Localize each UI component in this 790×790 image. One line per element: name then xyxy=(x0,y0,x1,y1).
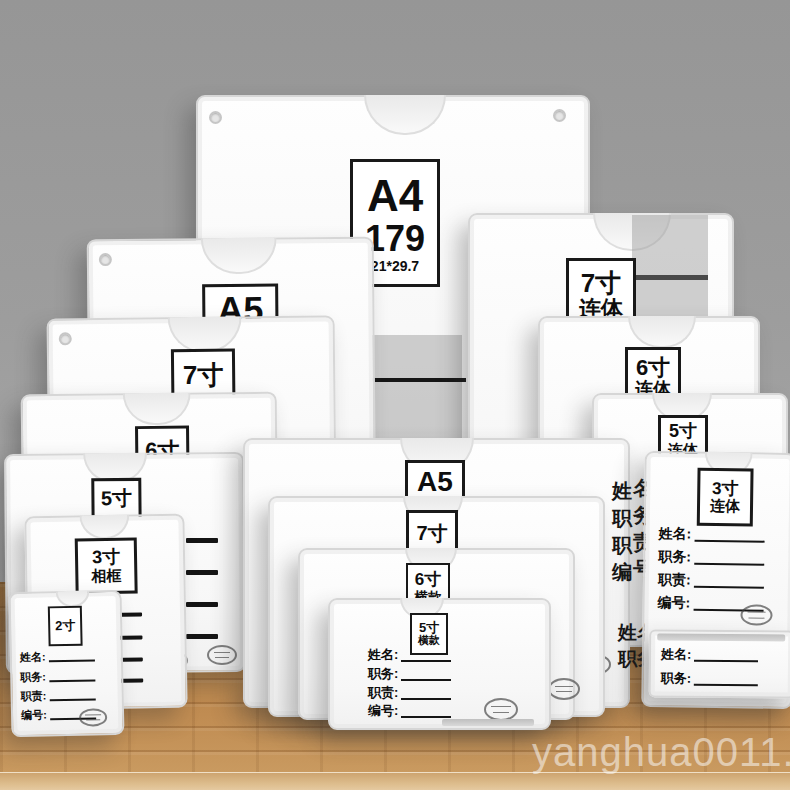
field-line xyxy=(401,660,451,662)
name-field-label: 姓名: xyxy=(659,525,692,543)
size-label-3inch-photo: 3寸 相框 xyxy=(75,537,138,594)
size-text: 2寸 xyxy=(55,619,76,633)
screw-hole-icon xyxy=(59,332,72,345)
field-line xyxy=(401,698,451,700)
size-text: 5寸 xyxy=(669,422,697,441)
size-text: A4 xyxy=(367,172,423,220)
frame-2inch: 2寸 姓名: 职务: 职责: 编号: xyxy=(8,590,124,737)
field-line xyxy=(401,679,451,681)
duty-field-label: 职责: xyxy=(658,571,691,589)
size-text: 5寸 xyxy=(419,621,439,635)
duty-field-label: 职责: xyxy=(368,684,398,702)
size-text: 连体 xyxy=(710,498,740,515)
thumb-notch-icon xyxy=(122,393,190,426)
oval-stamp-icon xyxy=(484,698,518,721)
frame-small-name-card: 姓名: 职务: xyxy=(649,629,790,698)
size-text: 3寸 xyxy=(712,480,739,499)
screw-hole-icon xyxy=(99,253,112,266)
field-line xyxy=(401,716,451,718)
frame-5inch-horizontal: 5寸 横款 姓名: 职务: 职责: 编号: xyxy=(328,598,551,730)
field-line xyxy=(49,698,95,701)
size-label-3inch-liantii: 3寸 连体 xyxy=(697,468,754,527)
name-field-label: 姓名: xyxy=(661,645,691,663)
partial-field-chars-column: 姓职职编 xyxy=(612,478,635,586)
size-label-2inch: 2寸 xyxy=(48,606,83,647)
oval-stamp-icon xyxy=(548,678,580,700)
size-text: 7寸 xyxy=(416,523,447,545)
size-text: 7寸 xyxy=(581,269,621,297)
field-line xyxy=(49,659,95,662)
size-text: 6寸 xyxy=(636,356,670,380)
price-text: 179 xyxy=(365,220,425,259)
position-field-label: 职务: xyxy=(661,669,691,687)
size-text: A5 xyxy=(417,467,453,497)
thumb-notch-icon xyxy=(79,515,129,540)
field-line xyxy=(49,679,95,682)
thumb-notch-icon xyxy=(364,95,446,135)
field-line xyxy=(694,563,764,566)
oval-stamp-icon xyxy=(79,708,107,727)
number-field-label: 编号: xyxy=(368,702,398,720)
size-text: 7寸 xyxy=(183,361,224,390)
size-text: 6寸 xyxy=(415,571,441,589)
thumb-notch-icon xyxy=(56,591,90,608)
card-divider-band xyxy=(657,633,785,641)
size-text: 相框 xyxy=(91,567,121,584)
field-line xyxy=(694,586,764,589)
edge-shadow-line xyxy=(632,275,708,280)
field-line xyxy=(694,684,758,687)
dimensions-text: 21*29.7 xyxy=(371,259,419,274)
size-text: 3寸 xyxy=(92,548,120,568)
position-field-label: 职务: xyxy=(368,665,398,683)
field-line xyxy=(694,540,764,543)
number-field-label: 编号: xyxy=(21,707,47,723)
position-field-label: 职务: xyxy=(20,669,46,685)
thumb-notch-icon xyxy=(628,316,696,348)
product-photo-scene: A4 179 21*29.7 姓名 职务 A5 7寸 连体 7寸 xyxy=(0,0,790,790)
duty-field-label: 职责: xyxy=(21,688,47,704)
card-divider-band xyxy=(442,719,534,726)
size-text: 5寸 xyxy=(101,488,132,510)
screw-hole-icon xyxy=(209,111,222,124)
field-line xyxy=(694,660,758,663)
position-field-label: 职务: xyxy=(658,548,691,566)
name-field-label: 姓名: xyxy=(20,649,46,665)
number-field-label: 编号: xyxy=(658,594,691,612)
thumb-notch-icon xyxy=(201,238,277,275)
name-field-label: 姓名: xyxy=(368,646,398,664)
oval-stamp-icon xyxy=(740,604,772,625)
watermark-text: yanghua0011.my xyxy=(532,730,790,775)
oval-stamp-icon xyxy=(207,645,237,665)
screw-hole-icon xyxy=(553,109,566,122)
